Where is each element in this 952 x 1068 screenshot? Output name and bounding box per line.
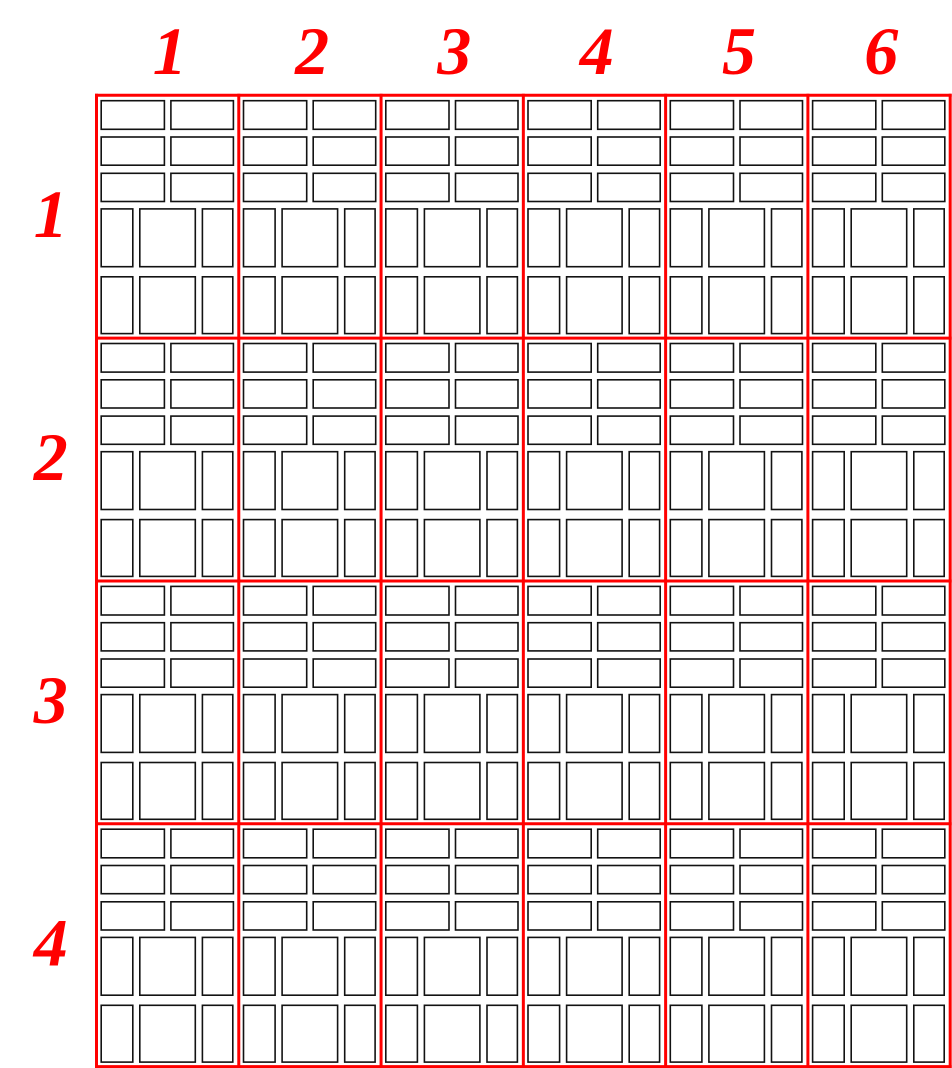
svg-text:4: 4 xyxy=(578,13,614,89)
svg-text:3: 3 xyxy=(33,662,68,738)
svg-text:2: 2 xyxy=(33,419,68,495)
svg-text:1: 1 xyxy=(153,13,187,89)
svg-text:5: 5 xyxy=(722,13,756,89)
svg-text:6: 6 xyxy=(864,13,898,89)
svg-text:4: 4 xyxy=(32,905,68,981)
svg-text:3: 3 xyxy=(436,13,471,89)
svg-text:1: 1 xyxy=(34,176,68,252)
svg-text:2: 2 xyxy=(294,13,329,89)
